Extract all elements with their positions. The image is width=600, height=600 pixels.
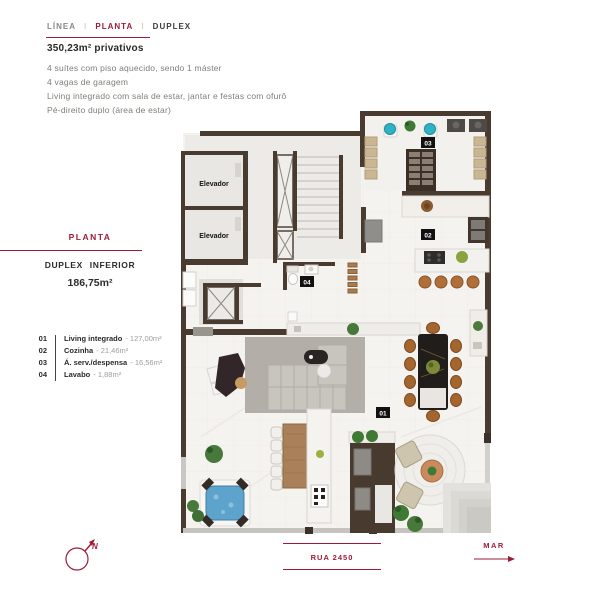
sea-name: MAR: [471, 541, 517, 550]
private-area-title: 350,23m² privativos: [47, 43, 377, 54]
room-tag-cozinha: 02: [421, 229, 435, 240]
coffee-table: [304, 350, 328, 364]
feature-item: 4 vagas de garagem: [47, 75, 377, 89]
legend-number: 01: [31, 334, 47, 343]
specs-block: 350,23m² privativos 4 suítes com piso aq…: [47, 43, 377, 117]
legend-number: 02: [31, 346, 47, 355]
plan-area: 186,75m²: [0, 277, 180, 289]
legend-row: 02 Cozinha - 21,46m²: [31, 346, 162, 358]
plan-section-label: PLANTA: [0, 232, 180, 242]
svg-text:01: 01: [379, 411, 387, 418]
svg-text:02: 02: [424, 233, 432, 240]
breadcrumb: LÍNEA I PLANTA I DUPLEX: [47, 22, 191, 31]
wood-slat-divider: [348, 263, 357, 293]
terrace-steps: [443, 483, 491, 533]
legend-value: - 127,00m²: [125, 334, 161, 343]
legend-row: 03 Á. serv./despensa - 16,56m²: [31, 358, 162, 370]
room-tag-servico: 03: [421, 137, 435, 148]
legend-value: - 16,56m²: [130, 358, 162, 367]
elevator-2: Elevador: [185, 210, 243, 259]
legend-value: - 1,88m²: [93, 370, 121, 379]
sea-label: MAR: [471, 541, 517, 568]
elevator-1-label: Elevador: [199, 181, 229, 188]
gourmet-cabinet: [349, 430, 395, 533]
feature-item: Living integrado com sala de estar, jant…: [47, 89, 377, 103]
room-tag-living: 01: [376, 407, 390, 418]
breadcrumb-brand: LÍNEA: [47, 22, 76, 31]
plan-name: DUPLEX INFERIOR: [0, 260, 180, 270]
street-label: RUA 2450: [283, 543, 381, 570]
feature-item: 4 suítes com piso aquecido, sendo 1 mást…: [47, 61, 377, 75]
svg-text:03: 03: [424, 141, 432, 148]
legend-label: Living integrado: [64, 334, 122, 343]
breadcrumb-tail: DUPLEX: [153, 22, 191, 31]
legend-row: 01 Living integrado - 127,00m²: [31, 334, 162, 346]
elevator-1: Elevador: [185, 155, 243, 206]
hot-tub: [200, 478, 250, 528]
compass-icon: N: [58, 535, 104, 581]
compass-north-label: N: [92, 542, 98, 551]
legend-value: - 21,46m²: [96, 346, 128, 355]
legend-number: 03: [31, 358, 47, 367]
room-tag-lavabo: 04: [300, 276, 314, 287]
bar-stools: [271, 427, 282, 490]
legend-divider: [55, 335, 56, 381]
street-name: RUA 2450: [311, 553, 354, 562]
breadcrumb-separator: I: [84, 22, 87, 31]
breadcrumb-active: PLANTA: [95, 22, 133, 31]
wall-console: [470, 310, 487, 356]
breadcrumb-underline: [46, 37, 150, 38]
sea-direction-arrow: [472, 555, 516, 563]
legend-label: Cozinha: [64, 346, 93, 355]
floor-plan: Elevador Elevador: [181, 107, 503, 538]
legend-number: 04: [31, 370, 47, 379]
legend-label: Á. serv./despensa: [64, 358, 127, 367]
room-legend: 01 Living integrado - 127,00m² 02 Cozinh…: [31, 334, 162, 382]
breadcrumb-separator: I: [141, 22, 144, 31]
plan-section-underline: [0, 250, 142, 251]
elevator-2-label: Elevador: [199, 233, 229, 240]
svg-text:04: 04: [303, 280, 311, 287]
legend-row: 04 Lavabo - 1,88m²: [31, 370, 162, 382]
legend-label: Lavabo: [64, 370, 90, 379]
plan-info-block: PLANTA DUPLEX INFERIOR 186,75m²: [0, 232, 180, 289]
